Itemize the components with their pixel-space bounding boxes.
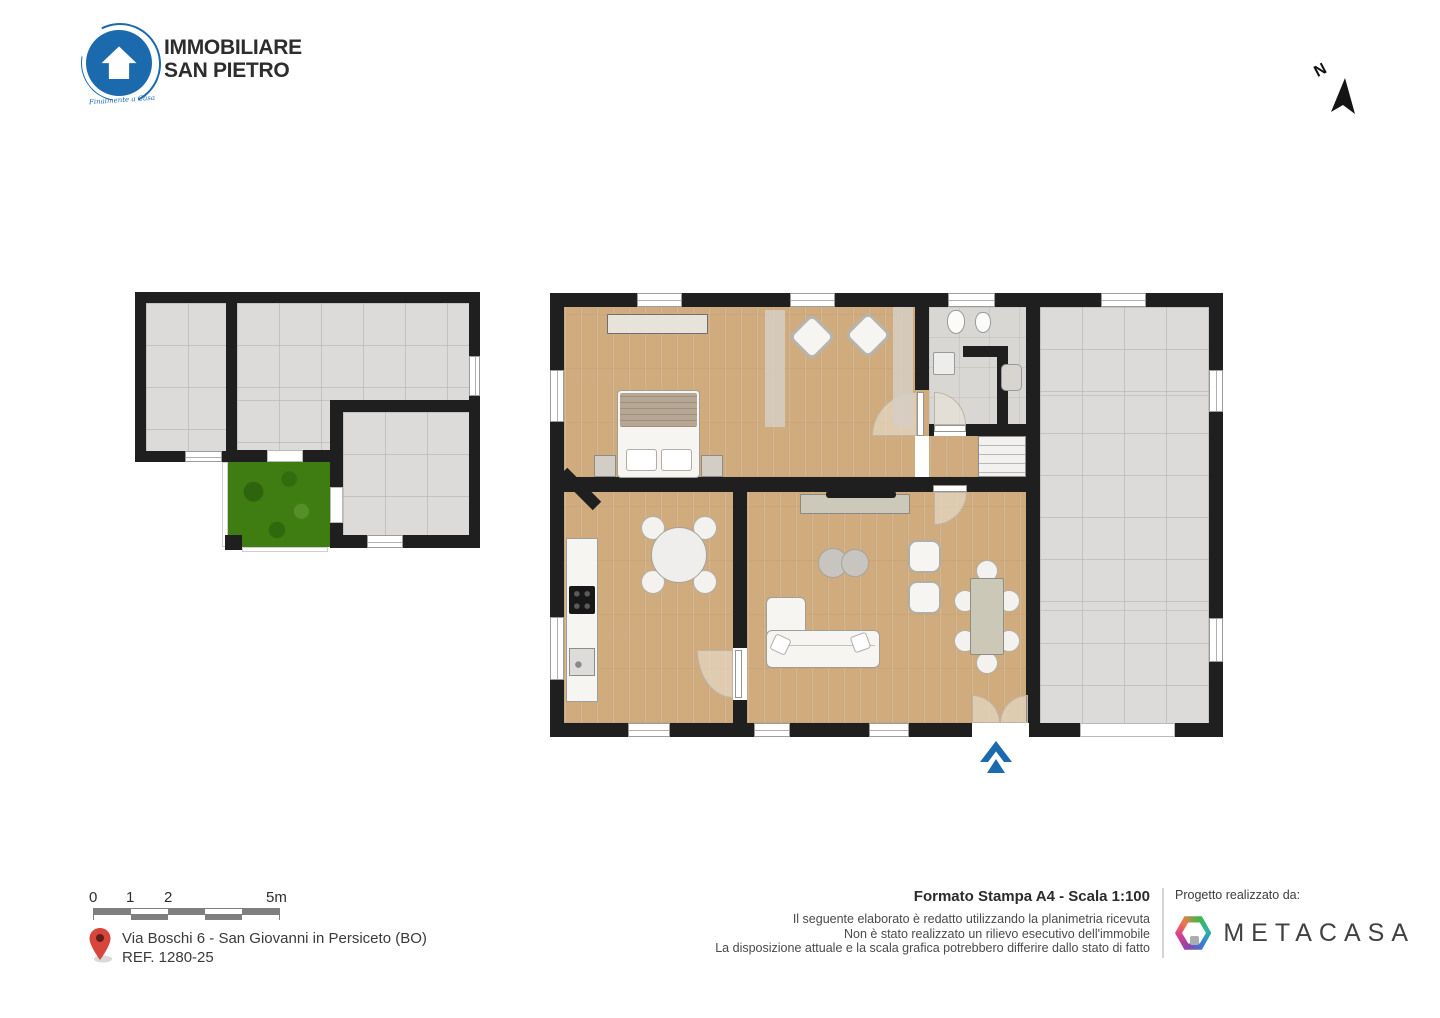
armchair: [908, 540, 941, 573]
metacasa-logo-icon: [1175, 914, 1211, 952]
map-pin-icon: [88, 927, 114, 965]
wall-post: [225, 535, 242, 550]
annex-room-top-floor: [237, 303, 469, 400]
north-indicator: N: [1305, 58, 1365, 128]
wall: [226, 292, 237, 462]
window: [948, 293, 995, 307]
door-leaf: [934, 425, 966, 432]
window: [869, 723, 909, 737]
wall-shelf: [826, 491, 896, 498]
window: [550, 370, 564, 422]
toilet: [947, 310, 965, 334]
annex-room-top-floor-lower: [237, 400, 330, 450]
house-icon: [96, 42, 142, 86]
wall-bathroom-inner: [963, 346, 1008, 357]
scale-label-2: 2: [164, 889, 172, 906]
bidet: [975, 312, 991, 333]
scale-label-0: 0: [89, 889, 97, 906]
disclaimer-line3: La disposizione attuale e la scala grafi…: [560, 941, 1150, 956]
disclaimer-line1: Il seguente elaborato è redatto utilizza…: [560, 912, 1150, 927]
window: [469, 356, 480, 396]
scale-label-5m: 5m: [266, 889, 287, 906]
wall: [330, 400, 480, 412]
wall: [135, 292, 146, 462]
wall: [1209, 293, 1223, 737]
garage-floor: [1040, 307, 1209, 723]
window: [1209, 370, 1223, 412]
scale-bar: 0 1 2 5m: [93, 908, 280, 920]
dining-table: [970, 578, 1004, 655]
bed-pillow: [626, 449, 657, 471]
entrance-opening: [972, 723, 1029, 737]
window: [367, 535, 403, 548]
agency-logo-icon: [86, 30, 152, 96]
entrance-arrow-icon: [976, 738, 1016, 774]
wall-bathroom: [915, 307, 929, 390]
window: [550, 617, 564, 680]
credit-label: Progetto realizzato da:: [1175, 888, 1415, 902]
bed-blanket: [620, 393, 697, 427]
window: [628, 723, 670, 737]
window: [1101, 293, 1146, 307]
agency-logo: IMMOBILIARE SAN PIETRO Finalmente a Casa: [80, 24, 400, 114]
bathroom-sink: [933, 352, 955, 375]
rug: [893, 307, 913, 427]
door-opening: [267, 450, 303, 462]
disclaimer: Il seguente elaborato è redatto utilizza…: [560, 912, 1150, 956]
credit-block: Progetto realizzato da: METACASA: [1175, 888, 1415, 952]
wall: [469, 292, 480, 548]
wall: [330, 535, 480, 548]
armchair: [908, 581, 941, 614]
print-format-title: Formato Stampa A4 - Scala 1:100: [560, 888, 1150, 905]
door-leaf: [917, 392, 924, 436]
pouf: [841, 549, 869, 577]
print-info: Formato Stampa A4 - Scala 1:100 Il segue…: [560, 888, 1150, 956]
agency-name: IMMOBILIARE SAN PIETRO: [164, 36, 302, 82]
washing-machine: [1001, 364, 1022, 391]
scale-label-1: 1: [126, 889, 134, 906]
annex-room-bottom-floor: [343, 412, 469, 535]
annex-courtyard-grass: [228, 462, 330, 547]
north-arrow-icon: [1323, 76, 1357, 120]
footer-divider: [1162, 888, 1164, 958]
address-line1: Via Boschi 6 - San Giovanni in Persiceto…: [122, 929, 427, 948]
agency-name-line2: SAN PIETRO: [164, 59, 302, 82]
window: [637, 293, 682, 307]
french-window: [754, 723, 790, 737]
chair: [976, 652, 998, 674]
door-leaf: [735, 650, 742, 698]
address-ref: REF. 1280-25: [122, 948, 427, 967]
round-table: [651, 527, 707, 583]
stove: [569, 586, 595, 614]
disclaimer-line2: Non è stato realizzato un rilievo esecut…: [560, 927, 1150, 942]
annex-room-left-floor: [146, 303, 226, 451]
wall-garage-divider: [1026, 307, 1040, 723]
wardrobe: [607, 314, 708, 334]
floor-seam: [1040, 395, 1209, 396]
double-bed: [617, 390, 700, 478]
door-leaf: [933, 485, 967, 492]
address-block: Via Boschi 6 - San Giovanni in Persiceto…: [122, 929, 427, 967]
stairs: [978, 436, 1026, 477]
garage-door-opening: [1080, 723, 1175, 737]
door-opening: [330, 487, 343, 523]
window: [185, 451, 222, 462]
wall: [330, 400, 343, 548]
courtyard-edge: [242, 547, 328, 552]
nightstand: [701, 455, 723, 477]
metacasa-brand-name: METACASA: [1223, 919, 1415, 948]
bed-pillow: [661, 449, 692, 471]
kitchen-counter: [566, 538, 598, 702]
metacasa-logo-door: [1190, 936, 1199, 945]
scale-bar-row: [94, 914, 279, 920]
nightstand: [594, 455, 616, 477]
window: [1209, 618, 1223, 662]
wall: [135, 292, 480, 303]
floor-seam: [1040, 610, 1209, 611]
agency-name-line1: IMMOBILIARE: [164, 36, 302, 59]
kitchen-sink: [569, 648, 595, 676]
rug: [765, 310, 785, 427]
window: [790, 293, 835, 307]
